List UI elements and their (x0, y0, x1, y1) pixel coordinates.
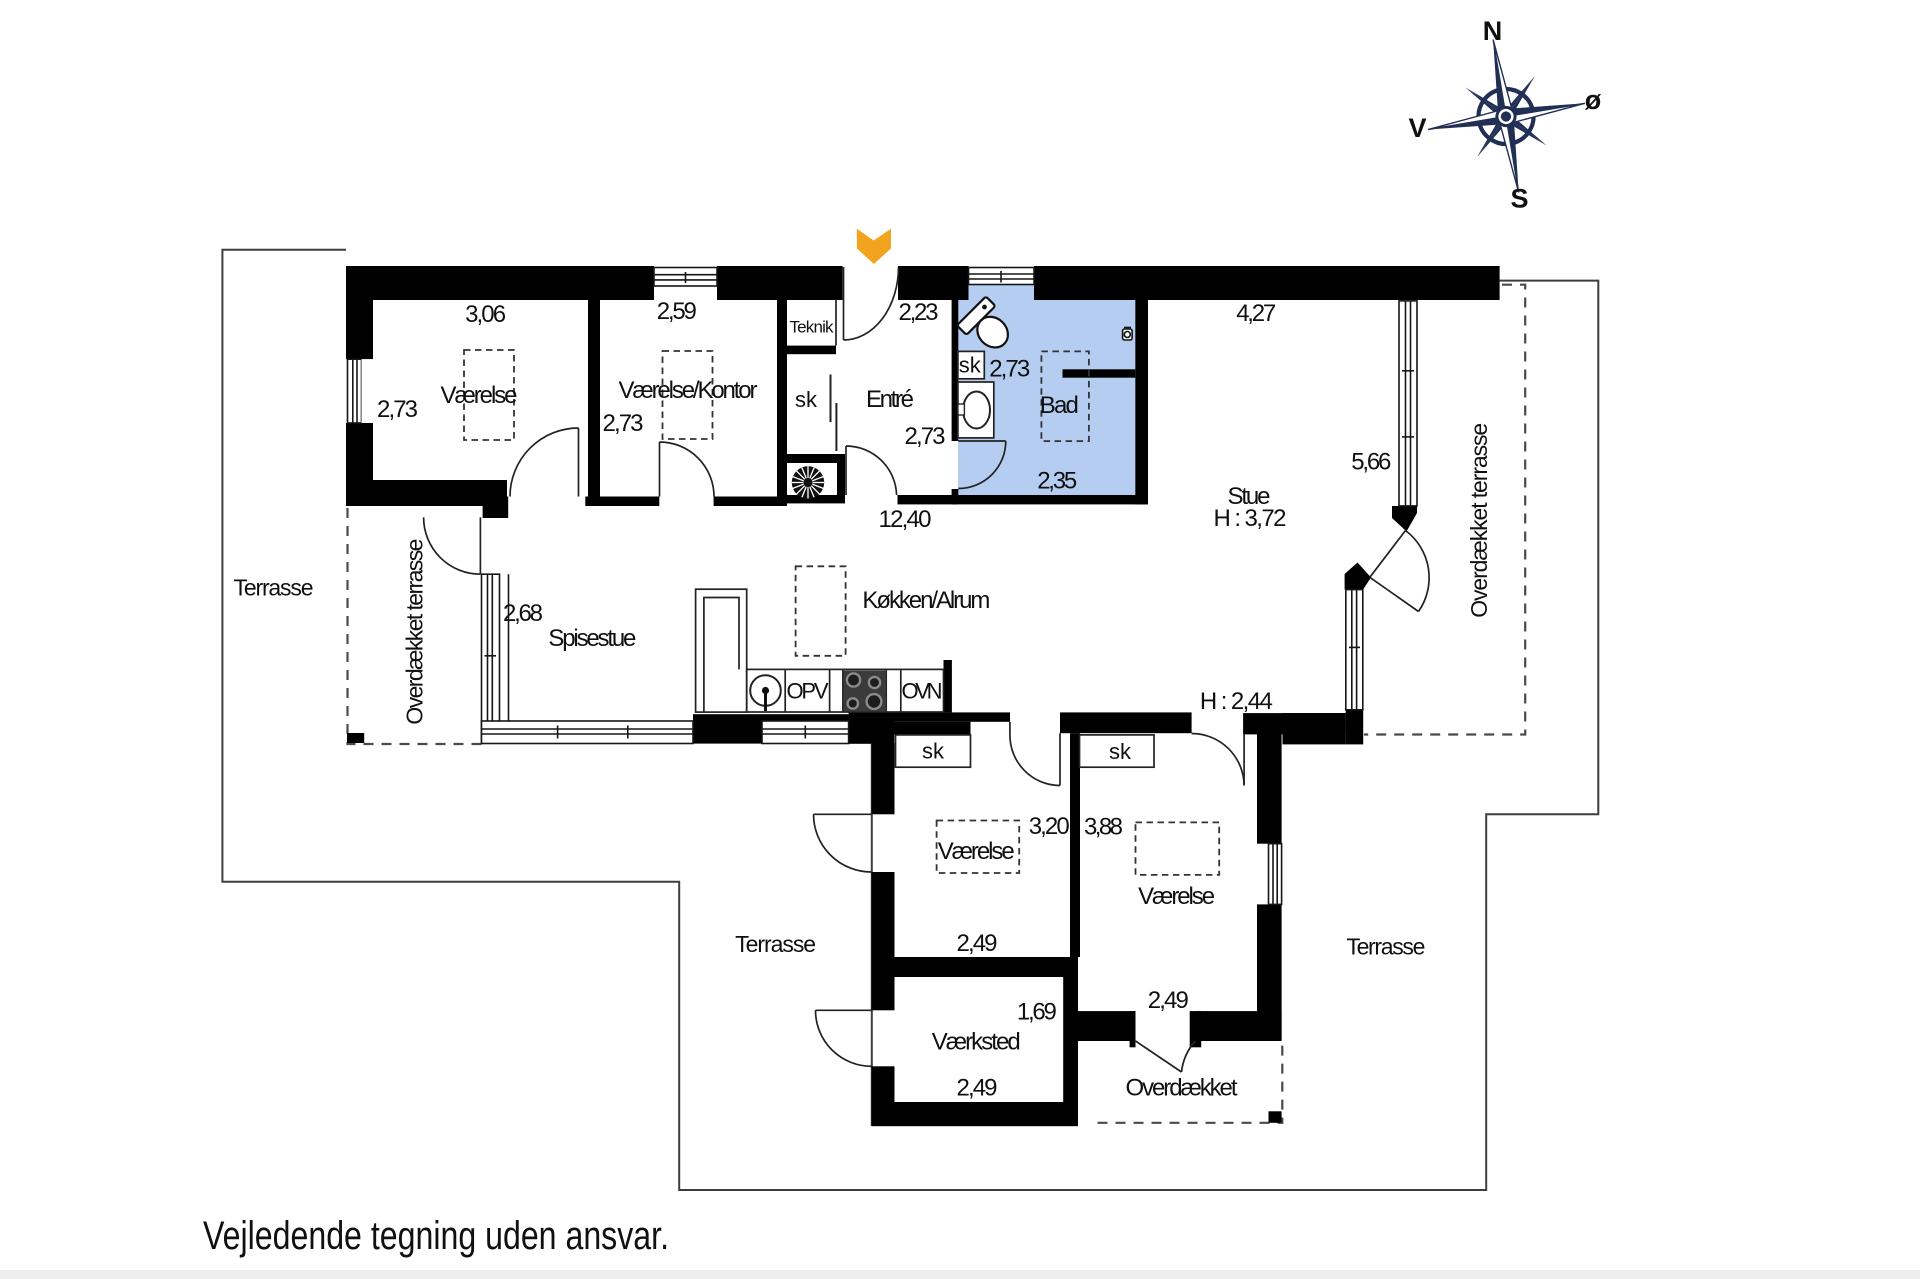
svg-text:sk: sk (795, 387, 818, 412)
svg-text:Terrasse: Terrasse (234, 575, 314, 601)
svg-text:1,69: 1,69 (1017, 999, 1057, 1026)
svg-text:Vejledende tegning uden ansvar: Vejledende tegning uden ansvar. (203, 1214, 669, 1258)
svg-text:Køkken/Alrum: Køkken/Alrum (862, 587, 990, 614)
svg-text:2,73: 2,73 (377, 396, 418, 423)
svg-text:4,27: 4,27 (1236, 300, 1276, 327)
svg-text:2,49: 2,49 (1148, 987, 1189, 1014)
svg-text:3,20: 3,20 (1029, 813, 1070, 840)
svg-text:Værelse/Kontor: Værelse/Kontor (619, 377, 758, 404)
svg-text:2,49: 2,49 (957, 1075, 998, 1102)
svg-text:Overdækket: Overdækket (1126, 1075, 1238, 1102)
svg-text:Entré: Entré (866, 386, 914, 413)
svg-text:S: S (1510, 184, 1528, 214)
svg-text:H : 2,44: H : 2,44 (1200, 688, 1273, 715)
svg-text:Værelse: Værelse (1138, 883, 1215, 910)
svg-text:Overdækket terrasse: Overdækket terrasse (402, 539, 428, 725)
svg-text:Teknik: Teknik (790, 318, 835, 337)
svg-text:N: N (1483, 16, 1503, 46)
svg-text:Stue: Stue (1228, 483, 1271, 510)
svg-text:Værelse: Værelse (441, 382, 518, 409)
svg-text:sk: sk (922, 739, 945, 764)
svg-text:2,73: 2,73 (905, 423, 946, 450)
svg-text:12,40: 12,40 (879, 506, 932, 533)
svg-text:V: V (1408, 113, 1426, 143)
svg-text:Værksted: Værksted (932, 1029, 1021, 1056)
svg-text:2,49: 2,49 (957, 930, 998, 957)
svg-text:5,66: 5,66 (1351, 449, 1391, 476)
svg-text:2,59: 2,59 (657, 298, 697, 325)
svg-text:ø: ø (1585, 85, 1602, 115)
svg-text:Spisestue: Spisestue (548, 625, 636, 652)
svg-text:OVN: OVN (902, 679, 943, 704)
svg-text:2,23: 2,23 (899, 299, 939, 326)
svg-text:2,73: 2,73 (989, 356, 1030, 383)
svg-text:3,88: 3,88 (1084, 814, 1123, 841)
svg-text:Terrasse: Terrasse (735, 931, 816, 957)
svg-text:Overdækket terrasse: Overdækket terrasse (1466, 423, 1492, 618)
svg-text:Terrasse: Terrasse (1346, 934, 1425, 960)
svg-text:sk: sk (1109, 739, 1132, 764)
svg-text:2,68: 2,68 (503, 600, 543, 627)
svg-text:2,73: 2,73 (603, 410, 644, 437)
svg-text:Bad: Bad (1040, 392, 1079, 419)
svg-text:OPV: OPV (787, 679, 829, 704)
svg-text:Værelse: Værelse (938, 838, 1015, 865)
svg-text:sk: sk (959, 353, 982, 378)
svg-text:2,35: 2,35 (1037, 468, 1077, 495)
svg-text:3,06: 3,06 (465, 301, 506, 328)
